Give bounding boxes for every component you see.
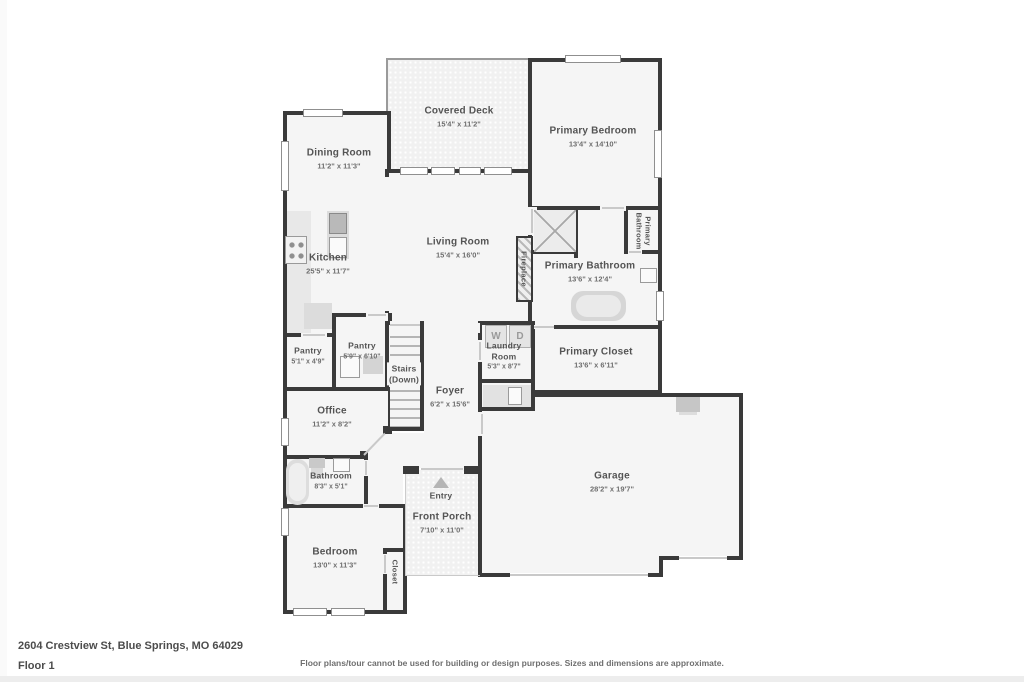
label-foyer: Foyer 6'2" x 15'6" xyxy=(430,385,470,408)
window-dining-top xyxy=(303,109,343,117)
label-entry: Entry xyxy=(430,491,453,502)
door-pantry-small xyxy=(303,334,325,336)
wall-garage-right xyxy=(739,393,743,560)
label-laundry-room: Laundry Room 5'3" x 8'7" xyxy=(479,340,529,371)
water-heater-icon xyxy=(676,397,700,412)
label-primary-bathroom: Primary Bathroom 13'6" x 12'4" xyxy=(545,260,635,283)
label-pantry-large: Pantry 5'9" x 6'10" xyxy=(343,341,380,362)
window-bedroom-left xyxy=(281,508,289,536)
wall-garage-bottom-a xyxy=(478,573,510,577)
door-pantry-large xyxy=(368,314,386,316)
wall-garage-notch-b xyxy=(727,556,743,560)
window-bedroom-bottom-1 xyxy=(293,608,327,616)
door-primary-closet xyxy=(534,326,554,328)
porch-edge-line xyxy=(405,575,480,576)
wall-garage-notch-a xyxy=(663,556,679,560)
refrigerator-icon xyxy=(329,213,347,234)
window-primary-bedroom-right xyxy=(654,130,662,178)
label-office: Office 11'2" x 8'2" xyxy=(312,405,351,428)
window-living-1 xyxy=(400,167,428,175)
label-front-porch: Front Porch 7'10" x 11'0" xyxy=(413,511,472,534)
floor-plan-page: W D Covered Deck 15'4" x 11'2" Primary B… xyxy=(0,0,1024,682)
window-living-4 xyxy=(484,167,512,175)
garage-door-small xyxy=(679,557,727,559)
label-kitchen: Kitchen 25'5" x 11'7" xyxy=(306,252,350,275)
bathtub-inner xyxy=(289,463,306,501)
vanity-sink-icon xyxy=(640,268,657,283)
label-closet: Closet xyxy=(390,560,399,585)
wall-wc-left xyxy=(624,210,628,254)
door-foyer-garage xyxy=(481,414,483,434)
label-garage: Garage 28'2" x 19'7" xyxy=(590,470,634,493)
bottom-bar xyxy=(0,676,1024,682)
entry-arrow-icon xyxy=(433,477,449,488)
label-primary-bathroom-wc: Primary Bathroom xyxy=(634,209,653,253)
wall-entry-left xyxy=(403,466,419,474)
door-bedroom xyxy=(364,505,378,507)
door-closet xyxy=(384,555,386,573)
wall-entry-right xyxy=(464,466,480,474)
window-office-left xyxy=(281,418,289,446)
left-edge-strip xyxy=(0,0,7,682)
address-text: 2604 Crestview St, Blue Springs, MO 6402… xyxy=(18,640,243,652)
label-living-room: Living Room 15'4" x 16'0" xyxy=(427,236,490,259)
window-primary-bath-right xyxy=(656,291,664,321)
entry-threshold xyxy=(421,468,463,470)
label-primary-closet: Primary Closet 13'6" x 6'11" xyxy=(559,346,632,369)
wall-garage-bottom-b xyxy=(648,573,663,577)
door-bathroom xyxy=(365,461,367,475)
window-primary-bedroom-top xyxy=(565,55,621,63)
mud-bench xyxy=(483,385,531,407)
label-fireplace: Fireplace xyxy=(519,251,528,287)
wall-garage-top xyxy=(535,393,743,397)
toilet-tank-icon xyxy=(309,458,325,468)
label-bathroom: Bathroom 8'3" x 5'1" xyxy=(310,471,352,492)
hallway-foyer-area xyxy=(389,433,424,468)
mud-sink-icon xyxy=(508,387,522,405)
label-covered-deck: Covered Deck 15'4" x 11'2" xyxy=(424,105,493,128)
door-primary-bedroom xyxy=(602,207,624,209)
stairs-top-line xyxy=(390,324,420,326)
opening-kitchen-living xyxy=(383,177,395,311)
stove-icon xyxy=(285,236,307,264)
disclaimer-text: Floor plans/tour cannot be used for buil… xyxy=(0,658,1024,668)
door-living-suite xyxy=(531,209,533,233)
window-bedroom-bottom-2 xyxy=(331,608,365,616)
window-living-2 xyxy=(431,167,455,175)
label-stairs: Stairs (Down) xyxy=(387,362,421,385)
shower-icon xyxy=(534,210,576,252)
garage-door-large xyxy=(510,574,648,576)
water-heater-base xyxy=(679,412,697,415)
label-dining-room: Dining Room 11'2" x 11'3" xyxy=(307,147,371,170)
label-pantry-small: Pantry 5'1" x 4'9" xyxy=(291,346,324,367)
primary-tub-inner xyxy=(576,295,621,317)
label-bedroom: Bedroom 13'0" x 11'3" xyxy=(312,546,357,569)
kitchen-counter-bottom xyxy=(304,303,332,329)
label-primary-bedroom: Primary Bedroom 13'4" x 14'10" xyxy=(550,125,637,148)
window-living-3 xyxy=(459,167,481,175)
wall-laundry-mud xyxy=(478,379,535,383)
window-dining-left xyxy=(281,141,289,191)
